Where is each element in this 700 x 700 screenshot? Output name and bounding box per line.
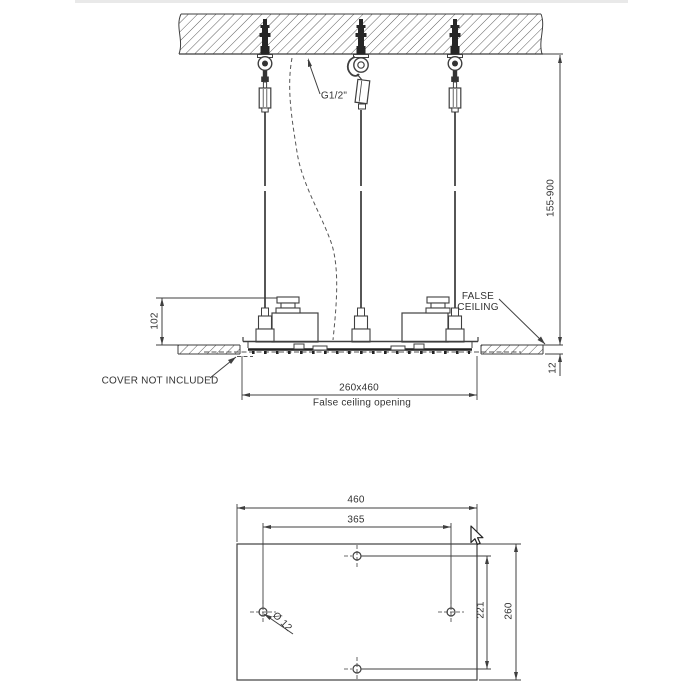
thread-leader bbox=[308, 58, 320, 94]
shower-installation-drawing: G1/2" 155-900 FALSE CEILING 102 COVER NO… bbox=[0, 0, 700, 700]
panel-thickness-label: 12 bbox=[548, 362, 559, 374]
cable-mount-middle bbox=[352, 308, 370, 342]
suspension-cables bbox=[265, 110, 455, 308]
plan-view bbox=[237, 504, 521, 681]
false-ceiling-panel-left bbox=[178, 345, 240, 354]
cover-note-label: COVER NOT INCLUDED bbox=[102, 376, 219, 387]
leader-arrowhead bbox=[308, 58, 312, 67]
plan-hole-spacing-depth-label: 221 bbox=[476, 601, 487, 618]
dim-hole-spacing-depth bbox=[361, 556, 491, 669]
false-ceiling-panel-right bbox=[481, 345, 543, 354]
drawing-linework bbox=[0, 0, 700, 700]
inlet-fitting-right bbox=[426, 297, 450, 313]
connection-box-right bbox=[402, 313, 448, 342]
inlet-fitting-left bbox=[276, 297, 300, 313]
opening-size-label: 260x460 bbox=[339, 383, 379, 394]
plan-depth-label: 260 bbox=[504, 602, 515, 619]
false-ceiling-label: FALSE CEILING bbox=[448, 291, 508, 313]
height-range-label: 155-900 bbox=[546, 179, 557, 217]
top-border-artifact bbox=[75, 0, 628, 3]
connection-box-left bbox=[272, 313, 318, 342]
plan-width-label: 460 bbox=[347, 495, 364, 506]
cable-mount-left bbox=[256, 308, 274, 342]
headbox-height-label: 102 bbox=[150, 312, 161, 329]
hole-center-marks bbox=[250, 545, 464, 681]
opening-caption-label: False ceiling opening bbox=[313, 398, 411, 409]
mounting-holes bbox=[250, 545, 464, 681]
plan-hole-spacing-width-label: 365 bbox=[347, 515, 364, 526]
thread-size-label: G1/2" bbox=[321, 91, 347, 102]
